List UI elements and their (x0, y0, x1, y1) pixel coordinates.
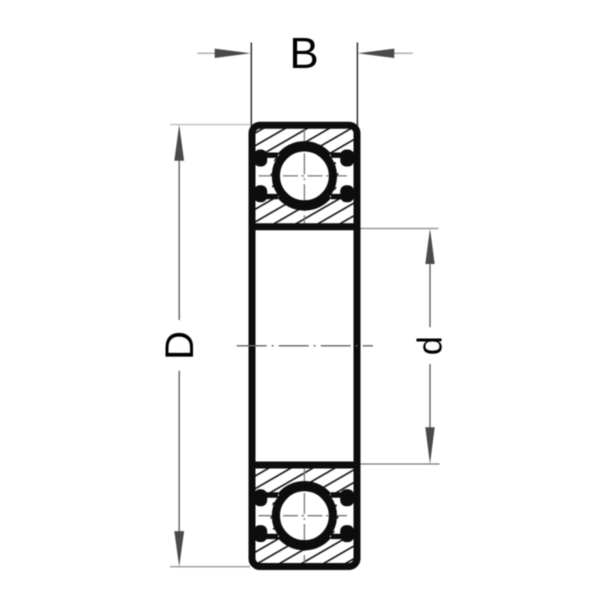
svg-text:D: D (158, 331, 202, 360)
svg-text:B: B (289, 29, 318, 78)
svg-text:d: d (412, 336, 450, 355)
